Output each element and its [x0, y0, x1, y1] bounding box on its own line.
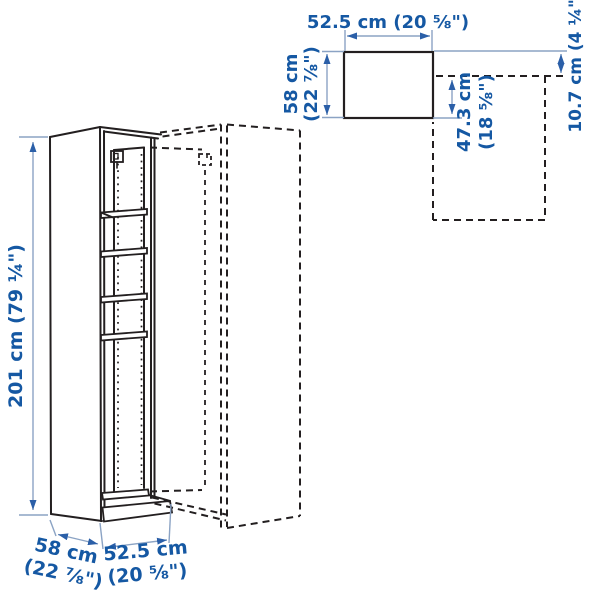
dimension-diagram: 201 cm (79 ¼") 52.5 cm (20 ⅝") 58 cm (22…: [0, 0, 600, 600]
inner-depth-label-line2: (18 ⅝"): [476, 74, 497, 150]
shelves: [101, 209, 172, 522]
top-view-addon-footprint: [344, 52, 433, 118]
height-label: 201 cm (79 ¼"): [5, 244, 27, 408]
dashed-mounting-bracket: [199, 154, 211, 165]
corner-unit-dashed-outline: [150, 125, 300, 529]
mounting-bracket: [111, 151, 123, 168]
wardrobe-frame: [50, 127, 161, 521]
diagram-canvas: 201 cm (79 ¼") 52.5 cm (20 ⅝") 58 cm (22…: [0, 0, 600, 600]
inner-depth-label-line1: 47.3 cm: [454, 72, 475, 152]
top-depth-label-line1: 58 cm: [281, 54, 302, 115]
bottom-panel: [102, 490, 149, 500]
dimension-labels: 201 cm (79 ¼") 52.5 cm (20 ⅝") 58 cm (22…: [5, 0, 586, 593]
top-depth-label-line2: (22 ⅞"): [301, 46, 322, 122]
base-plinth: [103, 501, 173, 522]
top-width-label: 52.5 cm (20 ⅝"): [307, 12, 469, 33]
side-offset-label: 10.7 cm (4 ¼"): [566, 0, 586, 133]
peg-holes: [118, 154, 142, 488]
